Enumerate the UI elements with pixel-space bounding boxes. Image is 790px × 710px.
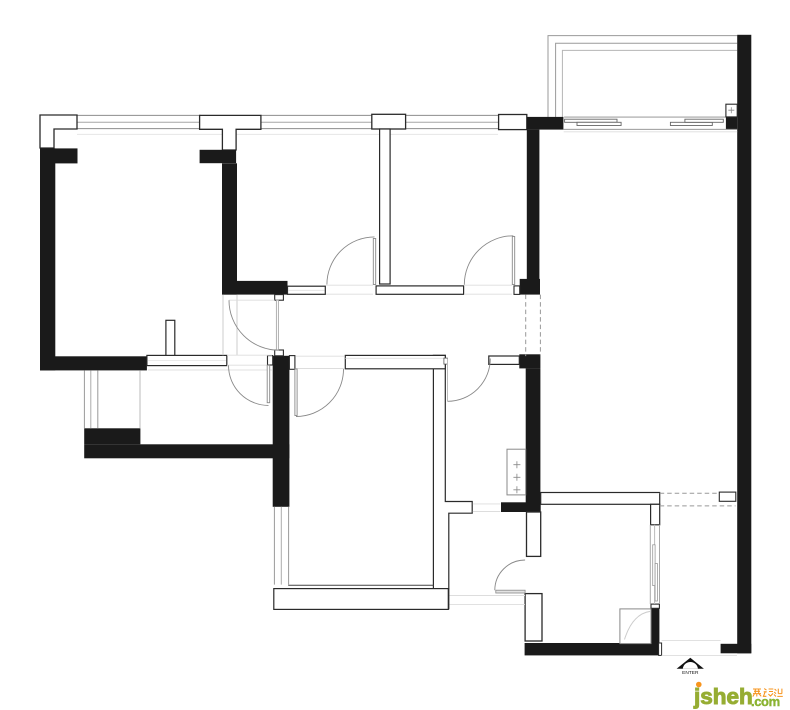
- svg-text:jsheh: jsheh: [693, 684, 753, 709]
- svg-text:ENTER: ENTER: [682, 670, 699, 676]
